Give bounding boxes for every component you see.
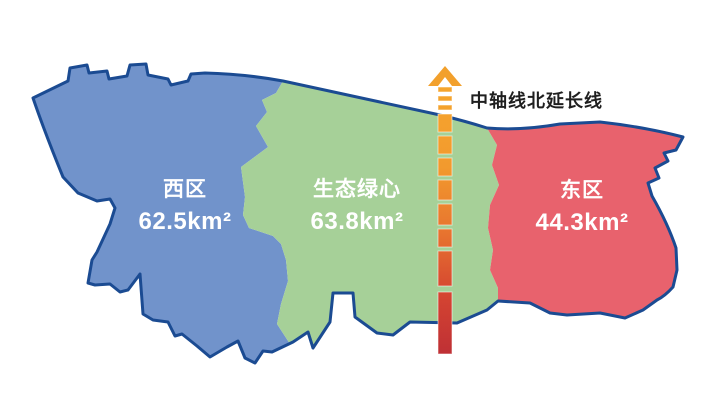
axis-dash-segment [438, 180, 452, 200]
axis-label: 中轴线北延长线 [470, 87, 603, 113]
axis-dash-segment [438, 136, 452, 154]
up-arrow-icon [428, 66, 462, 86]
axis-dash-segment [438, 158, 452, 176]
axis-dash-segment [438, 251, 452, 286]
axis-dash-segment [438, 87, 452, 92]
axis-dash-segment [438, 105, 452, 110]
district-map-canvas: 西区 62.5km² 生态绿心 63.8km² 东区 44.3km² 中轴线北延… [0, 0, 718, 407]
central-axis-dashed-line [438, 87, 452, 354]
axis-dash-segment [438, 292, 452, 354]
axis-dash-segment [438, 204, 452, 225]
axis-dash-segment [438, 229, 452, 247]
axis-dash-segment [438, 114, 452, 132]
axis-dash-segment [438, 96, 452, 101]
district-map [0, 0, 718, 407]
east-district-shape [487, 122, 683, 318]
